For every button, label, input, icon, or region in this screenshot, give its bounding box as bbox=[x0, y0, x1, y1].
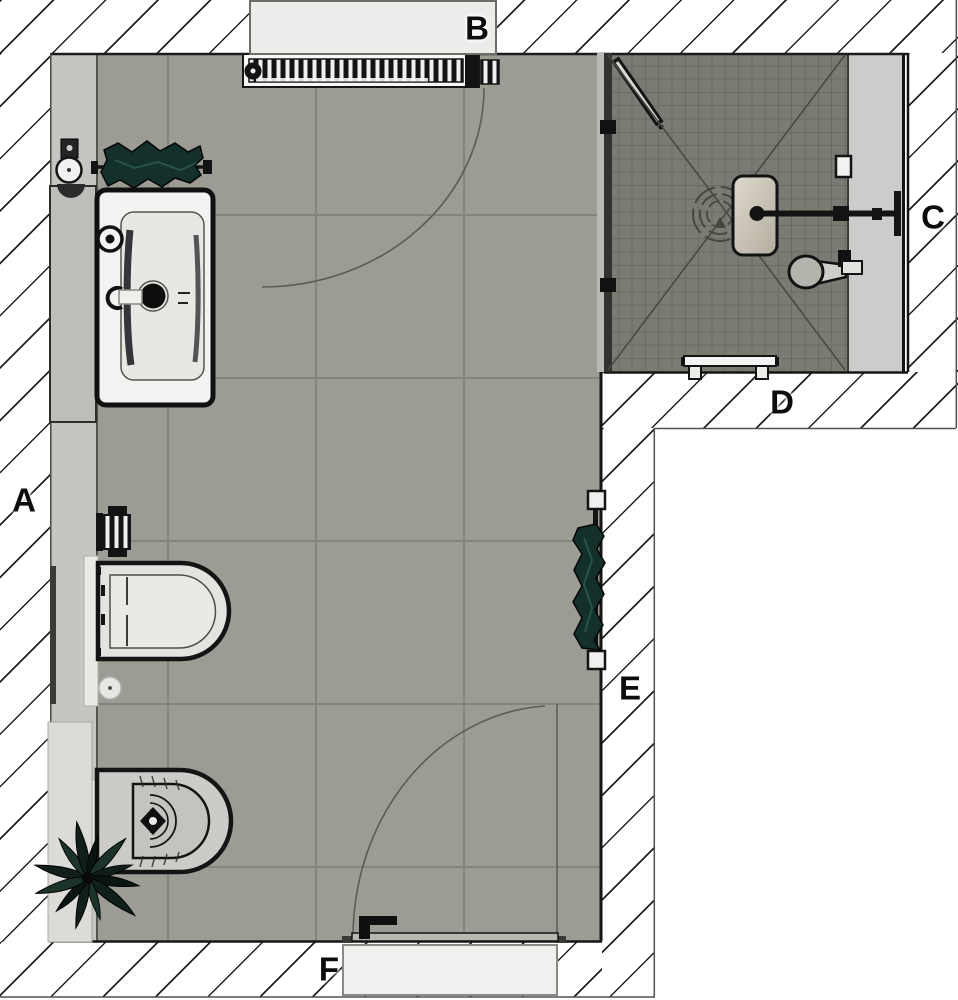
washbasin-vanity bbox=[97, 190, 213, 405]
label-window-b: B bbox=[465, 12, 489, 45]
hand-shower bbox=[789, 250, 862, 288]
radiator-valve bbox=[481, 60, 499, 84]
label-wall-a: A bbox=[12, 484, 36, 517]
floor-drain bbox=[99, 677, 121, 699]
bathroom-floor-plan: A B C D E F bbox=[0, 0, 958, 1000]
bidet bbox=[97, 770, 231, 872]
towel-icon bbox=[573, 524, 605, 650]
radiator bbox=[243, 52, 499, 88]
toilet bbox=[96, 563, 229, 659]
door-swing-arc bbox=[353, 704, 557, 938]
towel-rail-left bbox=[91, 141, 212, 188]
window-b bbox=[249, 0, 497, 55]
side-cabinet bbox=[50, 186, 96, 422]
toilet-roll-holder bbox=[96, 506, 130, 557]
shower-bench bbox=[681, 356, 779, 379]
label-wall-e: E bbox=[619, 672, 641, 705]
window-handle bbox=[465, 52, 478, 88]
wall-recess-strip bbox=[50, 566, 56, 704]
label-wall-d: D bbox=[770, 386, 794, 419]
label-door-f: F bbox=[319, 953, 339, 986]
shower-niche bbox=[836, 156, 851, 177]
plan-drawing bbox=[0, 0, 958, 1000]
shower-glass-partition bbox=[597, 53, 616, 372]
door-opening-f bbox=[342, 944, 558, 996]
door-handle bbox=[359, 916, 397, 925]
wall-dispenser bbox=[57, 139, 86, 198]
window-swing-arc bbox=[262, 88, 484, 287]
label-wall-c: C bbox=[921, 201, 945, 234]
entry-door bbox=[342, 916, 566, 943]
